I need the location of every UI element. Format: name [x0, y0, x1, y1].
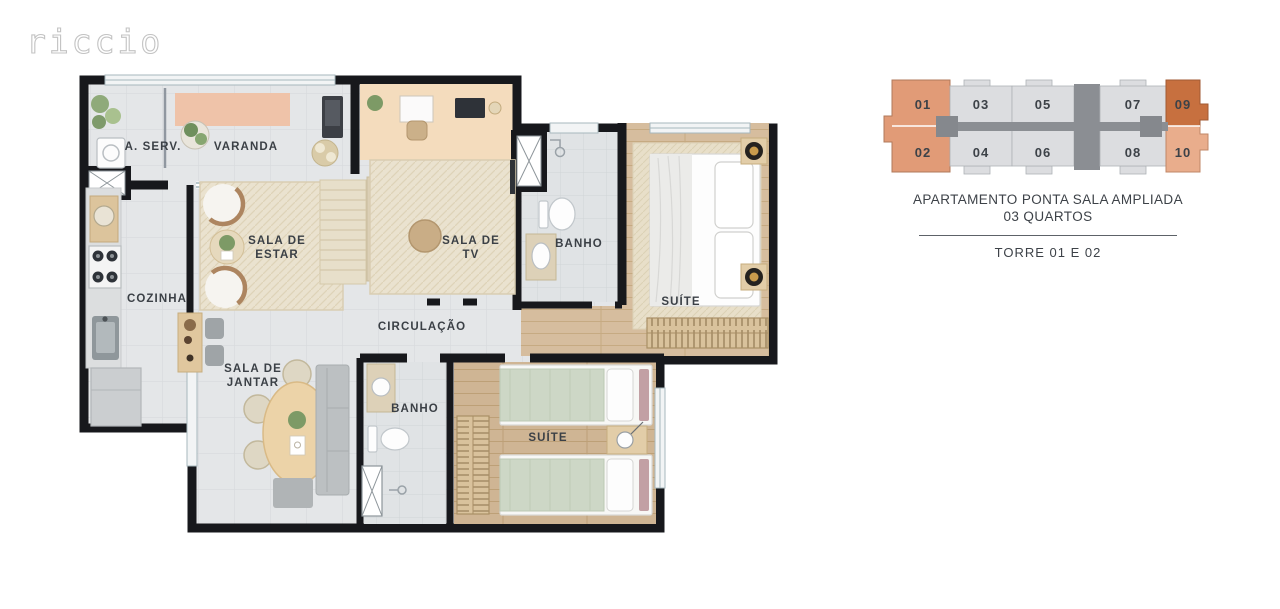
banho1-shaft: [511, 130, 547, 192]
cutting-board: [90, 196, 118, 242]
ottoman: [273, 478, 313, 508]
plant: [105, 108, 121, 124]
label-sala-estar-1: SALA DE: [248, 235, 306, 247]
nightstand-lamp: [607, 422, 647, 454]
washer: [97, 138, 125, 168]
suite1-furniture: [633, 138, 768, 348]
unit-label-02: 02: [915, 145, 931, 160]
dining-window: [187, 368, 197, 466]
keyplan-block: 01 02 03 04 05 06 07 08 09 10 APARTAMENT…: [878, 76, 1218, 260]
label-banho-1: BANHO: [555, 238, 603, 250]
label-sala-jantar-2: JANTAR: [227, 377, 279, 389]
label-sala-estar-2: ESTAR: [255, 249, 299, 261]
unit-label-07: 07: [1125, 97, 1141, 112]
grill: [322, 96, 343, 138]
label-varanda: VARANDA: [214, 141, 278, 153]
plant: [91, 95, 109, 113]
round-table: [312, 140, 338, 166]
plant-table: [181, 121, 209, 149]
stove: [89, 246, 121, 288]
sink-vanity: [526, 234, 556, 280]
label-banho-2: BANHO: [391, 403, 439, 415]
sofa: [316, 365, 349, 495]
rug: [370, 160, 515, 294]
banho1-window: [550, 123, 598, 133]
label-sala-tv-2: TV: [463, 249, 480, 261]
wardrobe: [647, 318, 768, 348]
caption-divider: [919, 235, 1177, 236]
single-bed: [500, 365, 652, 425]
label-suite-1: SUÍTE: [661, 295, 700, 308]
side-table: [210, 230, 244, 264]
suite2-window: [655, 388, 665, 488]
plant: [92, 115, 106, 129]
caption-line-2: 03 QUARTOS: [878, 208, 1218, 225]
nightstand-lamp: [741, 264, 767, 290]
caption-line-1: APARTAMENTO PONTA SALA AMPLIADA: [878, 191, 1218, 208]
brand-logo-text: riccio: [26, 22, 163, 61]
label-sala-tv-1: SALA DE: [442, 235, 500, 247]
suite1-window: [650, 123, 750, 133]
plant: [367, 95, 383, 111]
label-cozinha: COZINHA: [127, 293, 187, 305]
label-suite-2: SUÍTE: [528, 431, 567, 444]
pouf: [409, 220, 441, 252]
tower-label: TORRE 01 E 02: [878, 245, 1218, 260]
floor-plan: A. SERV. VARANDA SALA DE ESTAR SALA DE T…: [55, 58, 800, 540]
unit-label-03: 03: [973, 97, 989, 112]
office-floor: [360, 84, 513, 160]
tv: [510, 160, 515, 194]
unit-label-05: 05: [1035, 97, 1051, 112]
keyplan-elevator-node: [936, 116, 958, 137]
single-bed: [500, 455, 652, 515]
toilet: [368, 426, 409, 452]
keyplan-diagram: 01 02 03 04 05 06 07 08 09 10: [878, 76, 1214, 178]
kitchen-sink: [92, 316, 119, 360]
stool: [205, 345, 224, 366]
stool: [205, 318, 224, 339]
keyplan-elevator-node: [1140, 116, 1162, 137]
suite1-hall-floor: [521, 306, 622, 356]
varanda-window: [105, 75, 335, 85]
page: riccio: [0, 0, 1280, 609]
unit-label-01: 01: [915, 97, 931, 112]
unit-label-04: 04: [973, 145, 989, 160]
wardrobe: [457, 416, 489, 514]
unit-label-09: 09: [1175, 97, 1191, 112]
label-sala-jantar-1: SALA DE: [224, 363, 282, 375]
nightstand-lamp: [741, 138, 767, 164]
label-a-serv: A. SERV.: [125, 141, 182, 153]
fridge: [91, 368, 141, 426]
toilet: [539, 198, 575, 230]
keyplan-corridor: [938, 122, 1168, 131]
label-circulacao: CIRCULAÇÃO: [378, 320, 466, 333]
banho2-shower-door: [362, 466, 382, 516]
keyplan-caption: APARTAMENTO PONTA SALA AMPLIADA 03 QUART…: [878, 191, 1218, 260]
unit-label-08: 08: [1125, 145, 1141, 160]
unit-label-06: 06: [1035, 145, 1051, 160]
unit-label-10: 10: [1175, 145, 1191, 160]
